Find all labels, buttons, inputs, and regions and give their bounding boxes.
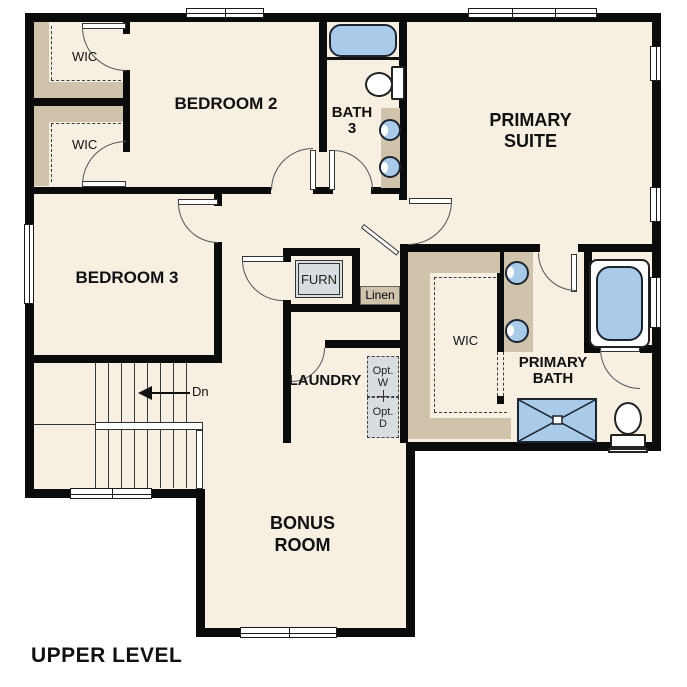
primary-suite-line1: PRIMARY [428, 110, 633, 131]
wall-bedroom3-right-b [214, 242, 222, 363]
opt-dryer: Opt. D [367, 397, 399, 438]
closet-rod-dash [51, 123, 121, 124]
linen-shelf: Linen [360, 286, 400, 305]
toilet-primary-bowl [614, 402, 642, 435]
wall-wic-divider [25, 98, 130, 106]
room-label-primary-suite: PRIMARY SUITE [428, 110, 633, 152]
sink-bath3-2 [379, 156, 401, 178]
stair-tread [121, 363, 122, 422]
opt-washer-label-1: Opt. [368, 365, 398, 377]
window-stairwell [70, 488, 152, 499]
stair-arrow-head [138, 386, 152, 400]
bonus-line1: BONUS [230, 512, 375, 534]
linen-label: Linen [365, 288, 394, 302]
wall-furn-left-stub [283, 248, 291, 262]
furnace-unit: FURN [295, 260, 343, 298]
room-label-wic-primary: WIC [438, 333, 493, 348]
stair-tread [134, 363, 135, 422]
furn-label: FURN [301, 272, 337, 287]
shelf-wic-primary-bottom [430, 418, 511, 439]
primary-bath-line2: BATH [504, 371, 602, 387]
room-label-primary-bath: PRIMARY BATH [504, 355, 602, 387]
stair-rail-horizontal [95, 422, 203, 430]
wall-wic-vanity-stub [497, 396, 504, 404]
stair-tread [134, 430, 135, 488]
closet-rod-dash [51, 124, 52, 182]
sink-primary-2 [505, 319, 529, 343]
shower-primary [517, 398, 597, 443]
furnace-inner-border: FURN [298, 263, 340, 295]
room-label-laundry: LAUNDRY [285, 372, 365, 389]
shelf-wic-primary-top [430, 252, 500, 273]
stair-tread [95, 363, 96, 422]
stair-tread [121, 430, 122, 488]
wall-bedroom3-bottom [25, 355, 221, 363]
exterior-wall-bonus-left [196, 489, 205, 637]
wall-wic-right-b [123, 70, 130, 152]
toilet-primary-base [608, 448, 648, 453]
primary-bath-line1: PRIMARY [504, 355, 602, 371]
opt-dryer-label-2: D [368, 418, 398, 430]
floor-title: UPPER LEVEL [31, 644, 182, 668]
stair-landing-line [34, 424, 95, 425]
shelf-wic-primary-left [408, 252, 430, 439]
floor-plan: Linen [0, 0, 687, 687]
floor-stairwell [30, 446, 200, 494]
primary-suite-line2: SUITE [428, 131, 633, 152]
wall-bath3-primary [399, 22, 407, 200]
wall-furn-linen-bottom [283, 304, 407, 312]
wall-suite-bottom-a [408, 244, 540, 252]
stair-tread [95, 430, 96, 488]
window-bedroom2 [186, 8, 264, 18]
window-primary-suite-top [468, 8, 597, 18]
wd-stack-mark [383, 390, 384, 402]
sink-primary-1 [505, 261, 529, 285]
stair-tread [173, 430, 174, 488]
bath3-line1: BATH [325, 105, 379, 121]
closet-rod-dash [434, 277, 496, 278]
wall-furn-right [352, 248, 360, 312]
wall-furn-top [283, 248, 360, 256]
cased-opening-dash [497, 352, 498, 396]
window-bonus [240, 627, 337, 638]
shelf-wic-bedroom3-top [34, 106, 123, 122]
stair-tread [160, 430, 161, 488]
stair-tread [186, 430, 187, 488]
stair-arrow-shaft [152, 392, 190, 394]
shower-glass-lines [519, 400, 595, 441]
bath3-line2: 3 [325, 121, 379, 137]
bonus-line2: ROOM [230, 534, 375, 556]
room-label-wic-bedroom2: WIC [72, 49, 97, 64]
room-label-bedroom3: BEDROOM 3 [37, 268, 217, 288]
stair-tread [108, 430, 109, 488]
stair-tread [108, 363, 109, 422]
bathtub-primary [596, 266, 643, 341]
stair-rail-vertical [196, 430, 203, 489]
opt-dryer-label-1: Opt. [368, 406, 398, 418]
shelf-wic-bedroom2-bottom [34, 82, 123, 98]
room-label-bedroom2: BEDROOM 2 [136, 94, 316, 114]
tub-deck-line [322, 57, 403, 60]
opt-washer-label-2: W [368, 377, 398, 389]
stairs-direction-label: Dn [192, 384, 209, 399]
stair-tread [147, 430, 148, 488]
sink-bath3-1 [379, 119, 401, 141]
wall-laundry-top [325, 340, 408, 348]
window-primary-tub [650, 277, 661, 328]
room-label-bonus: BONUS ROOM [230, 512, 375, 556]
closet-rod-dash [51, 80, 121, 81]
toilet-primary-tank [610, 434, 646, 448]
room-label-bath3: BATH 3 [325, 105, 379, 137]
toilet-bath3-tank [391, 66, 405, 100]
closet-rod-dash [51, 26, 52, 80]
wall-hall-top-a [25, 187, 271, 194]
toilet-bath3-bowl [365, 72, 393, 97]
exterior-wall-bonus-right [406, 442, 415, 637]
closet-rod-dash [434, 412, 507, 413]
room-label-wic-bedroom3: WIC [72, 137, 97, 152]
closet-rod-dash [434, 277, 435, 412]
bathtub-bath3 [329, 24, 397, 57]
window-bedroom3 [24, 224, 34, 304]
window-right-mid [650, 187, 661, 222]
window-right-upper [650, 46, 661, 81]
